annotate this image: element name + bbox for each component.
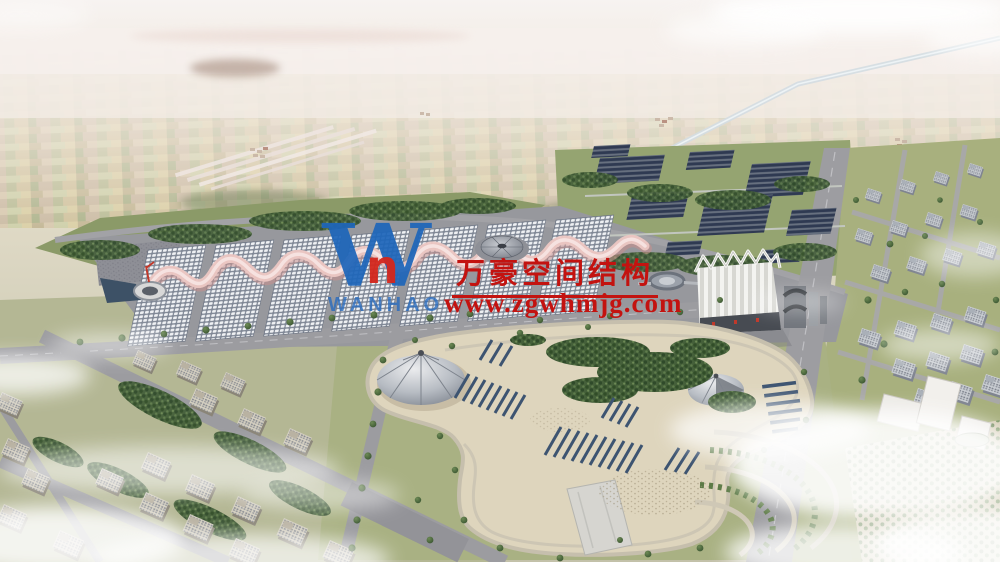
crowd-dots [599, 469, 711, 515]
logo-n-icon: n [366, 244, 399, 290]
aerial-rendering: W n WANHAO 万豪空间结构 www.zgwhmjg.com [0, 0, 1000, 562]
dark-field-patch [190, 59, 280, 77]
entry-rotunda [134, 282, 166, 300]
watermark-website: www.zgwhmjg.com [444, 288, 682, 319]
company-logo: W n WANHAO [328, 228, 438, 318]
distant-town [130, 29, 470, 43]
logo-wordmark: WANHAO [328, 294, 438, 317]
